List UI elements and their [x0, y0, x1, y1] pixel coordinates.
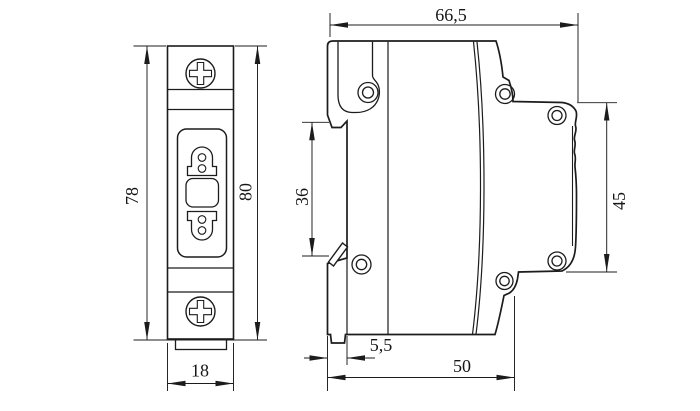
dimension-height-80: 80 [235, 46, 267, 340]
technical-drawing-canvas: 66,5 78 80 18 36 45 [0, 0, 700, 411]
dim-label-18: 18 [191, 361, 209, 381]
front-view [168, 46, 234, 350]
connector-middle-window [186, 179, 219, 208]
dim-label-78: 78 [122, 187, 142, 205]
extension-line [328, 296, 515, 391]
phillips-cross-icon [190, 301, 212, 323]
din-rail-claw [338, 42, 379, 113]
connector-bottom [188, 212, 217, 241]
dim-label-66-5: 66,5 [435, 5, 467, 25]
extension-line [330, 13, 578, 102]
din-rail-latch [329, 243, 348, 266]
drawing-svg: 66,5 78 80 18 36 45 [0, 0, 700, 411]
front-bottom-tab [176, 340, 227, 350]
phillips-screw-bottom [186, 297, 215, 326]
dimension-recess-36: 36 [292, 122, 329, 256]
connector-top [188, 147, 217, 176]
dim-label-45: 45 [609, 192, 629, 210]
dim-label-5-5: 5,5 [370, 335, 393, 355]
extension-line [566, 103, 617, 272]
dim-label-36: 36 [292, 188, 312, 206]
phillips-cross-icon [190, 63, 212, 85]
side-body-outline [328, 41, 577, 343]
dim-label-50: 50 [453, 356, 471, 376]
dim-label-80: 80 [236, 183, 256, 201]
dimension-depth-50: 50 [328, 296, 515, 391]
side-view [328, 41, 577, 343]
phillips-screw-top [186, 59, 215, 88]
rivet [352, 83, 566, 290]
case-seam-curve [473, 42, 485, 335]
dimension-step-5-5: 5,5 [304, 335, 392, 365]
dimension-width-18: 18 [168, 343, 234, 391]
